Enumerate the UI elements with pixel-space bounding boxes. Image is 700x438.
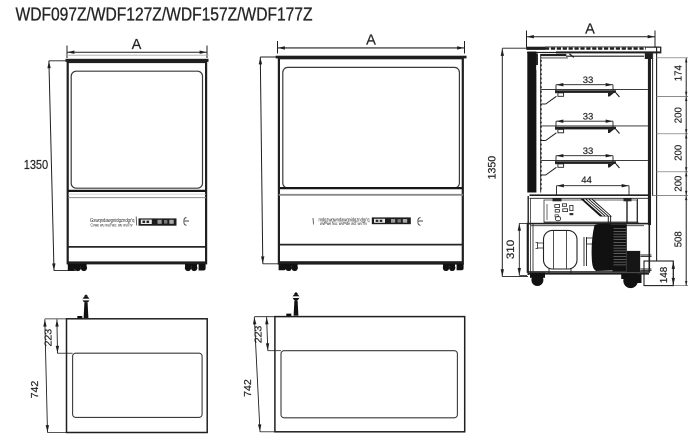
svg-text:742: 742 [30,380,41,398]
svg-text:200: 200 [674,107,685,124]
svg-text:1350: 1350 [486,156,498,180]
svg-text:1350: 1350 [24,158,49,172]
svg-text:A: A [366,32,376,48]
svg-text:148: 148 [659,266,670,283]
svg-text:WDF097Z/WDF127Z/WDF157Z/WDF177: WDF097Z/WDF127Z/WDF157Z/WDF177Z [16,5,313,26]
svg-text:wvPwe wu: wvPwe wu: wvTrv: wvPwe wu: wvPwe wu: wvTrv [320,221,368,226]
svg-text:742: 742 [243,379,254,397]
svg-text:310: 310 [505,240,517,259]
svg-text:44: 44 [581,175,592,186]
svg-text:174: 174 [674,65,685,82]
svg-text:508: 508 [674,231,685,248]
svg-text:200: 200 [674,175,685,192]
svg-text:A: A [585,22,595,38]
svg-text:A: A [132,37,142,53]
svg-text:Cvwe wu wuTwu: wu wuTrv: Cvwe wu wuTwu: wu wuTrv [91,222,134,227]
svg-text:200: 200 [674,144,685,161]
